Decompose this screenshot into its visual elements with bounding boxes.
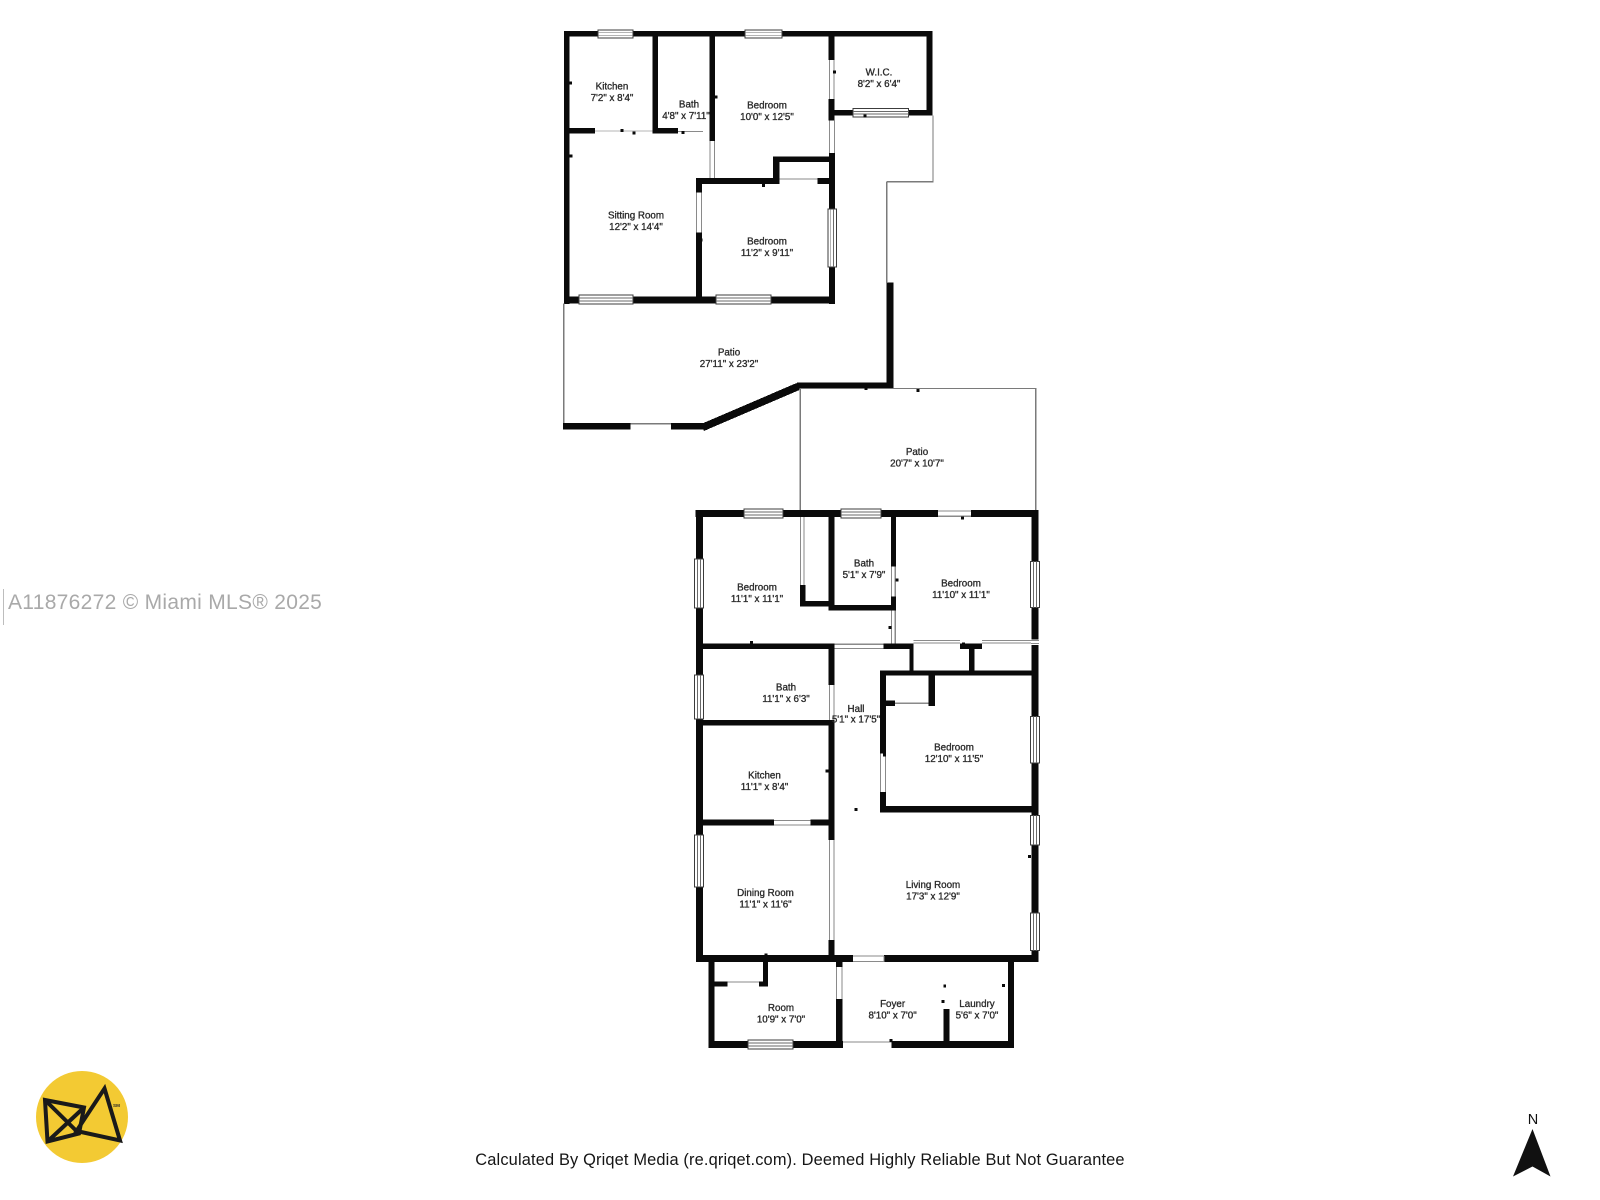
svg-text:7'2" x 8'4": 7'2" x 8'4" [591,93,634,104]
svg-text:Laundry: Laundry [959,999,995,1010]
svg-text:Bedroom: Bedroom [747,237,787,248]
svg-text:Bedroom: Bedroom [934,743,974,754]
svg-text:Living Room: Living Room [906,880,960,891]
svg-text:10'9" x 7'0": 10'9" x 7'0" [757,1014,806,1025]
svg-text:Bedroom: Bedroom [941,579,981,590]
svg-text:12'10" x 11'5": 12'10" x 11'5" [925,754,984,765]
svg-text:11'10" x 11'1": 11'10" x 11'1" [932,590,990,601]
svg-text:Kitchen: Kitchen [748,771,781,782]
svg-text:Hall: Hall [848,704,865,715]
svg-text:5'1" x 17'5": 5'1" x 17'5" [832,715,881,726]
svg-text:10'0" x 12'5": 10'0" x 12'5" [740,112,794,123]
svg-text:11'1" x 11'6": 11'1" x 11'6" [739,899,792,910]
svg-text:N: N [1528,1112,1538,1128]
svg-text:Bath: Bath [776,683,796,694]
svg-text:Foyer: Foyer [880,999,906,1010]
svg-text:Patio: Patio [718,348,741,359]
svg-text:Bedroom: Bedroom [747,101,787,112]
svg-text:5'1" x 7'9": 5'1" x 7'9" [843,570,886,581]
svg-text:A11876272 © Miami MLS® 2025: A11876272 © Miami MLS® 2025 [8,591,322,614]
svg-text:W.I.C.: W.I.C. [866,68,893,79]
svg-text:Kitchen: Kitchen [596,82,629,93]
svg-text:11'1" x 8'4": 11'1" x 8'4" [741,782,789,793]
svg-text:Bath: Bath [679,100,699,111]
svg-text:Calculated By Qriqet Media (re: Calculated By Qriqet Media (re.qriqet.co… [475,1151,1124,1169]
svg-text:27'11" x 23'2": 27'11" x 23'2" [700,359,759,370]
svg-text:4'8" x 7'11": 4'8" x 7'11" [662,111,710,122]
svg-text:17'3" x 12'9": 17'3" x 12'9" [906,891,960,902]
svg-text:8'2" x 6'4": 8'2" x 6'4" [858,79,901,90]
svg-text:Dining Room: Dining Room [737,888,794,899]
svg-text:Sitting Room: Sitting Room [608,211,664,222]
svg-text:Room: Room [768,1003,794,1014]
svg-text:12'2" x 14'4": 12'2" x 14'4" [609,222,663,233]
svg-text:11'2" x 9'11": 11'2" x 9'11" [741,248,794,259]
svg-text:11'1" x 11'1": 11'1" x 11'1" [731,594,784,605]
svg-text:Bath: Bath [854,559,874,570]
svg-text:8'10" x 7'0": 8'10" x 7'0" [868,1010,917,1021]
svg-text:Patio: Patio [906,447,929,458]
svg-text:11'1" x 6'3": 11'1" x 6'3" [762,694,810,705]
svg-text:Bedroom: Bedroom [737,583,777,594]
svg-text:SM: SM [113,1103,120,1108]
svg-text:20'7" x 10'7": 20'7" x 10'7" [890,458,944,469]
svg-text:5'6" x 7'0": 5'6" x 7'0" [956,1010,999,1021]
